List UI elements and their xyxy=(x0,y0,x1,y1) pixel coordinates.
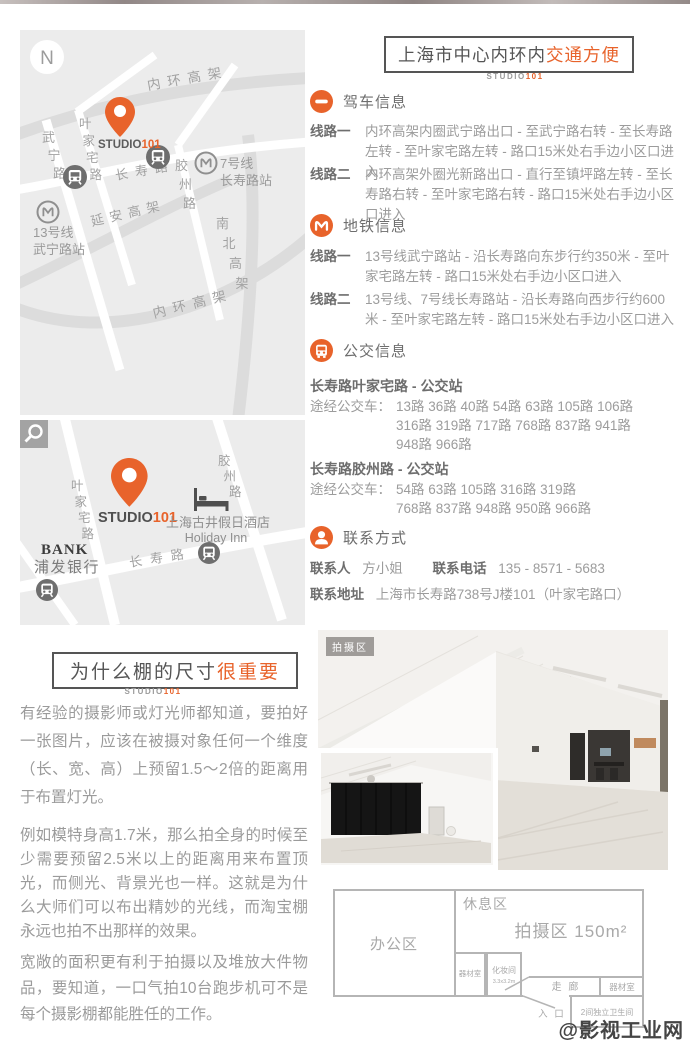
label-makeup-size: 3.3x3.2m xyxy=(493,979,516,985)
photo-area-tag: 拍摄区 xyxy=(326,637,374,656)
metro-section-heading: 地铁信息 xyxy=(310,214,407,237)
label-equip-right: 器材室 xyxy=(609,982,635,992)
page-title-accent: 交通方便 xyxy=(546,45,620,65)
pin-studio-logo: STUDIO101 xyxy=(98,139,161,151)
contact-address-row: 联系地址 上海市长寿路738号J楼101（叶家宅路口） xyxy=(310,583,676,603)
svg-text:N: N xyxy=(40,48,54,69)
bus-lines-label: 途经公交车： xyxy=(310,397,396,454)
watermark: @影视工业网 xyxy=(558,1014,684,1043)
driving-section-heading: 驾车信息 xyxy=(310,90,407,113)
area-map-overview: N 内环高架 内环高架 武宁路 叶家宅路 长寿路 胶州路 延安高架 南北高架 7… xyxy=(20,30,305,415)
why-title-accent: 很重要 xyxy=(217,662,280,683)
label-line7-station: 长寿路站 xyxy=(220,173,272,188)
bus-line-row: 316路 319路 717路 768路 837路 941路 xyxy=(396,416,676,435)
page-title-plain: 上海市中心内环内 xyxy=(398,45,546,65)
route-label: 线路二 xyxy=(310,290,365,330)
route-text: 13号线、7号线长寿路站 - 沿长寿路向西步行约600米 - 至叶家宅路左转 -… xyxy=(365,290,676,330)
label-hotel-en: Holiday Inn xyxy=(185,531,248,545)
why-paragraph-2: 例如模特身高1.7米，那么拍全身的时候至少需要预留2.5米以上的距离用来布置顶光… xyxy=(20,824,308,944)
metro-icon xyxy=(310,214,333,237)
bus-stop-name-1: 长寿路叶家宅路 - 公交站 xyxy=(310,376,462,396)
page-title: 上海市中心内环内交通方便 xyxy=(384,36,634,73)
why-title-plain: 为什么棚的尺寸 xyxy=(70,662,217,683)
driving-title: 驾车信息 xyxy=(343,91,407,112)
bus-line-row: 54路 63路 105路 316路 319路 xyxy=(396,480,676,499)
label-bank-en: BANK xyxy=(41,542,88,558)
contact-section-heading: 联系方式 xyxy=(310,526,407,549)
contact-address-label: 联系地址 xyxy=(310,587,364,602)
train-station-icon xyxy=(198,542,220,564)
studio-floor-plan: 办公区 休息区 拍摄区 150m² 器材室 化妆间 3.3x3.2m 走 廊 器… xyxy=(333,889,645,1029)
bus-lines-list: 54路 63路 105路 316路 319路 768路 837路 948路 95… xyxy=(396,480,676,518)
contact-person-label: 联系人 xyxy=(310,561,351,576)
area-map-detail: 叶家宅路 胶州路 长寿路 STUDIO101 上海古井假日酒店 Holiday … xyxy=(20,420,305,625)
metro-logo-icon xyxy=(196,153,217,174)
metro-logo-icon xyxy=(38,202,59,223)
label-office: 办公区 xyxy=(370,936,418,953)
studio-photo-collage: 拍摄区 xyxy=(310,622,676,878)
contact-address-value: 上海市长寿路738号J楼101（叶家宅路口） xyxy=(376,587,630,602)
label-line7: 7号线 xyxy=(220,156,253,171)
top-gradient-bar xyxy=(0,0,690,4)
label-corridor: 走 廊 xyxy=(552,980,581,993)
route-text: 内环高架外圈光新路出口 - 直行至镇坪路左转 - 至长寿路右转 - 至叶家宅路右… xyxy=(365,165,676,225)
contact-title: 联系方式 xyxy=(343,527,407,548)
bus-line-row: 948路 966路 xyxy=(396,435,676,454)
studio101-logo: STUDIO101 xyxy=(384,72,646,81)
metro-route-2: 线路二 13号线、7号线长寿路站 - 沿长寿路向西步行约600米 - 至叶家宅路… xyxy=(310,290,676,330)
bus-section-heading: 公交信息 xyxy=(310,339,407,362)
label-rest-area: 休息区 xyxy=(463,896,508,912)
metro-title: 地铁信息 xyxy=(343,215,407,236)
train-station-icon xyxy=(63,165,87,189)
label-shoot-area: 拍摄区 150m² xyxy=(515,922,628,941)
route-text: 13号线武宁路站 - 沿长寿路向东步行约350米 - 至叶家宅路左转 - 路口1… xyxy=(365,247,676,287)
train-station-icon xyxy=(36,579,58,601)
studio101-logo: STUDIO101 xyxy=(52,687,254,696)
magnifier-icon xyxy=(20,420,48,448)
compass-north: N xyxy=(30,40,64,74)
bus-stop-lines-2: 途经公交车： 54路 63路 105路 316路 319路 768路 837路 … xyxy=(310,480,676,518)
flyer-page: N 内环高架 内环高架 武宁路 叶家宅路 长寿路 胶州路 延安高架 南北高架 7… xyxy=(0,0,690,1047)
contact-phone-label: 联系电话 xyxy=(433,561,487,576)
bus-title: 公交信息 xyxy=(343,340,407,361)
car-no-entry-icon xyxy=(310,90,333,113)
side-panel xyxy=(660,700,668,800)
why-paragraph-1: 有经验的摄影师或灯光师都知道，要拍好一张图片，应该在被摄对象任何一个维度（长、宽… xyxy=(20,700,308,812)
bus-lines-list: 13路 36路 40路 54路 63路 105路 106路 316路 319路 … xyxy=(396,397,676,454)
label-equip-left: 器材室 xyxy=(459,968,482,978)
why-paragraph-3: 宽敞的面积更有利于拍摄以及堆放大件物品，要知道，一口气拍10台跑步机可不是每个摄… xyxy=(20,950,308,1028)
person-icon xyxy=(310,526,333,549)
label-bank-cn: 浦发银行 xyxy=(34,559,100,576)
why-section-title: 为什么棚的尺寸很重要 xyxy=(52,652,298,689)
bus-stop-lines-1: 途经公交车： 13路 36路 40路 54路 63路 105路 106路 316… xyxy=(310,397,676,454)
studio-photo-inset xyxy=(316,748,498,870)
bus-stop-name-2: 长寿路胶州路 - 公交站 xyxy=(310,459,448,479)
cabinet xyxy=(429,807,444,835)
label-hotel-cn: 上海古井假日酒店 xyxy=(166,515,270,530)
route-label: 线路一 xyxy=(310,247,365,287)
contact-phone-value: 135 - 8571 - 5683 xyxy=(498,561,605,576)
wall-art xyxy=(634,738,656,748)
contact-person-value: 方小姐 xyxy=(362,561,403,576)
bus-line-row: 768路 837路 948路 950路 966路 xyxy=(396,499,676,518)
label-line13: 13号线 xyxy=(33,225,73,240)
label-makeup: 化妆间 xyxy=(492,965,516,975)
metro-route-1: 线路一 13号线武宁路站 - 沿长寿路向东步行约350米 - 至叶家宅路左转 -… xyxy=(310,247,676,287)
contact-person-row: 联系人 方小姐 联系电话 135 - 8571 - 5683 xyxy=(310,557,676,577)
dark-doorway xyxy=(570,733,585,780)
bus-icon xyxy=(310,339,333,362)
bus-line-row: 13路 36路 40路 54路 63路 105路 106路 xyxy=(396,397,676,416)
bus-lines-label: 途经公交车： xyxy=(310,480,396,518)
label-line13-station: 武宁路站 xyxy=(33,242,85,257)
